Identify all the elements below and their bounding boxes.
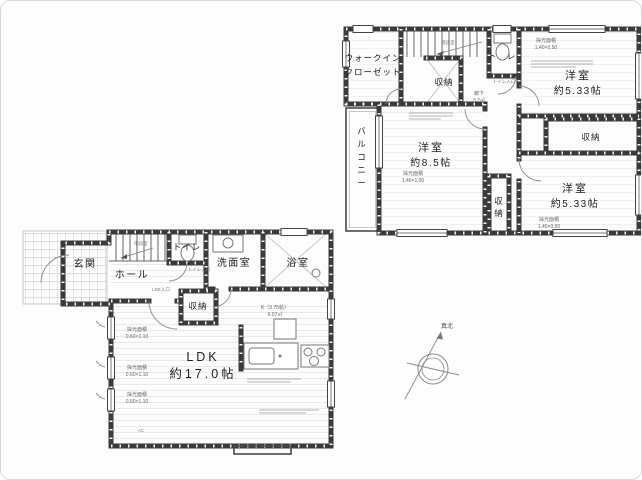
washbasin-fixture bbox=[213, 235, 243, 252]
bath-label: 浴室 bbox=[287, 256, 310, 269]
svg-text:ル: ル bbox=[357, 139, 367, 149]
closet-center-char1: 収 bbox=[494, 196, 504, 206]
stair-label-1f: 階段室 bbox=[134, 240, 148, 247]
room1-light-value: 1.40×0.50 bbox=[535, 45, 558, 51]
light1-label: 採光面積 bbox=[127, 326, 147, 333]
room2-light-label: 採光面積 bbox=[539, 216, 559, 223]
second-floor-plan: ウォークイン クローゼット 階段室 収納 トイレ トイレ入口 廊下 3.2㎡ 洋… bbox=[343, 26, 642, 237]
room3-size: 約8.5帖 bbox=[410, 156, 451, 169]
closet-by-stairs-label: 収納 bbox=[434, 77, 453, 87]
room1-name: 洋室 bbox=[565, 68, 591, 82]
compass: 真北 bbox=[405, 322, 459, 399]
closet-label-1f: 収納 bbox=[188, 301, 207, 311]
north-label: 真北 bbox=[441, 322, 453, 330]
washroom-label: 洗面室 bbox=[217, 256, 252, 269]
floorplan-canvas: ウォークイン クローゼット 階段室 収納 トイレ トイレ入口 廊下 3.2㎡ 洋… bbox=[0, 0, 642, 480]
closet-center-char2: 納 bbox=[494, 208, 504, 218]
corridor-area: 3.2㎡ bbox=[473, 97, 485, 104]
light2-label: 採光面積 bbox=[127, 364, 147, 371]
floorplan-drawing: ウォークイン クローゼット 階段室 収納 トイレ トイレ入口 廊下 3.2㎡ 洋… bbox=[1, 1, 642, 480]
room3-floor bbox=[381, 108, 483, 231]
room3-name: 洋室 bbox=[418, 140, 444, 154]
room1-light-label: 採光面積 bbox=[536, 37, 556, 44]
svg-text:バ: バ bbox=[357, 126, 367, 136]
light3-label: 採光面積 bbox=[127, 391, 147, 398]
room3-light-value: 1.40×1.00 bbox=[402, 178, 425, 184]
hall-label: ホール bbox=[115, 269, 150, 281]
room1-size: 約5.33帖 bbox=[554, 84, 602, 97]
balcony-label: バ ル コ ニ ー bbox=[357, 126, 367, 188]
wic-label-line1: ウォークイン bbox=[344, 53, 401, 63]
stairs-1f bbox=[109, 233, 169, 261]
light2-value: 0.60×1.10 bbox=[126, 372, 149, 378]
ldk-name: LDK bbox=[186, 350, 219, 364]
toilet-fixture-2f bbox=[494, 34, 511, 60]
wic-label-line2: クローゼット bbox=[344, 67, 401, 77]
light3-value: 0.60×1.10 bbox=[126, 399, 149, 405]
svg-text:ニ: ニ bbox=[357, 165, 367, 175]
toilet-label-1f: トイレ bbox=[173, 242, 202, 252]
svg-text:ー: ー bbox=[357, 178, 367, 188]
corridor-label: 廊下 bbox=[474, 90, 484, 97]
ac-label: AC bbox=[138, 428, 145, 433]
closet-right-label: 収納 bbox=[581, 132, 600, 142]
stair-arrow-1f bbox=[121, 254, 127, 259]
svg-text:コ: コ bbox=[357, 152, 367, 162]
first-floor-plan: 玄関 ホール 階段室 トイレ トイレ入口 洗面室 浴室 収納 LDK入口 LDK… bbox=[23, 229, 335, 455]
toilet-door-label-2f: トイレ入口 bbox=[493, 79, 516, 85]
entrance-label: 玄関 bbox=[74, 257, 97, 270]
light1-value: 0.60×1.10 bbox=[126, 334, 149, 340]
stair-label-2f: 階段室 bbox=[441, 39, 455, 46]
ldk-entry-label: LDK入口 bbox=[152, 287, 170, 293]
casement-swings bbox=[96, 321, 105, 399]
room2-light-value: 1.40×0.50 bbox=[538, 224, 561, 230]
room3-light-label: 採光面積 bbox=[403, 170, 423, 177]
kitchen-area: 6.07㎡ bbox=[268, 311, 283, 318]
kitchen-label: K（3.75帖） bbox=[261, 304, 289, 311]
room2-name: 洋室 bbox=[562, 181, 588, 195]
north-arrow-icon bbox=[437, 332, 444, 340]
ldk-size: 約17.0帖 bbox=[169, 366, 236, 381]
room2-size: 約5.33帖 bbox=[551, 197, 599, 210]
